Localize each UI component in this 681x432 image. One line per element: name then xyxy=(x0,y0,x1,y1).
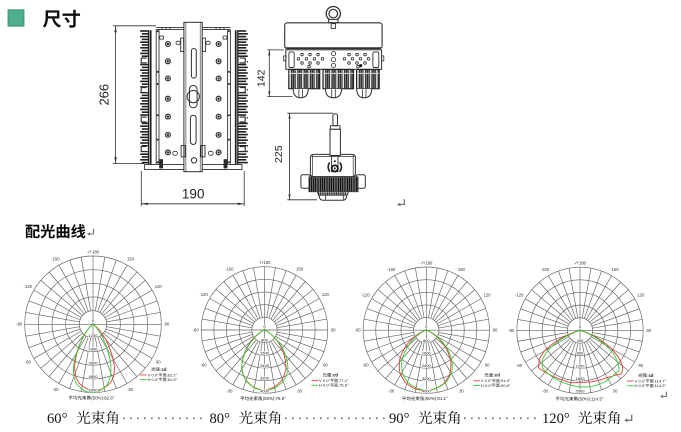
svg-text:80°: 80° xyxy=(210,411,231,427)
svg-text:H 0.0°: H 0.0° xyxy=(319,383,331,388)
svg-text:-/+180: -/+180 xyxy=(574,261,587,266)
svg-text:60: 60 xyxy=(638,363,643,368)
svg-text:30: 30 xyxy=(613,389,618,394)
svg-text:-30: -30 xyxy=(226,388,233,393)
svg-text:-150: -150 xyxy=(387,267,396,272)
svg-text:30: 30 xyxy=(128,387,133,392)
svg-text:150: 150 xyxy=(296,267,304,272)
svg-text:-30: -30 xyxy=(542,389,549,394)
svg-text:120: 120 xyxy=(637,293,645,298)
svg-text::cd: :cd xyxy=(160,367,167,372)
svg-text:60: 60 xyxy=(156,359,161,364)
svg-text:120°: 120° xyxy=(542,411,570,427)
svg-text:150: 150 xyxy=(612,267,620,272)
svg-text:-150: -150 xyxy=(541,267,550,272)
svg-text:,90.8°: ,90.8° xyxy=(500,383,511,388)
svg-text:H 0.0°: H 0.0° xyxy=(148,377,160,382)
svg-text:1200: 1200 xyxy=(89,333,99,338)
svg-text:6000: 6000 xyxy=(89,388,99,393)
svg-text:90°: 90° xyxy=(389,411,410,427)
svg-text:1600: 1600 xyxy=(576,376,586,381)
svg-text:800: 800 xyxy=(577,351,584,356)
svg-text:,114.3°: ,114.3° xyxy=(654,383,667,388)
svg-text:,76.6°: ,76.6° xyxy=(338,383,349,388)
svg-text:2000: 2000 xyxy=(576,389,586,394)
svg-text::cd: :cd xyxy=(494,373,501,378)
svg-text:4000: 4000 xyxy=(422,388,432,393)
svg-text:-90: -90 xyxy=(508,328,515,333)
svg-text:4000: 4000 xyxy=(260,388,270,393)
svg-text:(50%):91.1°: (50%):91.1° xyxy=(425,396,448,401)
svg-text:(50%):62.6°: (50%):62.6° xyxy=(91,395,114,400)
svg-text:800: 800 xyxy=(261,338,268,343)
svg-text:90: 90 xyxy=(164,322,169,327)
svg-text:0: 0 xyxy=(425,324,428,329)
svg-text:120: 120 xyxy=(322,292,330,297)
svg-text:-90: -90 xyxy=(193,327,200,332)
svg-text:H 0.0°: H 0.0° xyxy=(481,383,493,388)
svg-text:1200: 1200 xyxy=(576,363,586,368)
svg-text:800: 800 xyxy=(423,338,430,343)
svg-text:-60: -60 xyxy=(201,363,208,368)
svg-text:-120: -120 xyxy=(24,284,33,289)
svg-text:3600: 3600 xyxy=(89,360,99,365)
svg-text:120: 120 xyxy=(155,284,163,289)
svg-text::cd: :cd xyxy=(647,373,654,378)
svg-text:(50%):76.9°: (50%):76.9° xyxy=(263,396,286,401)
svg-text:190: 190 xyxy=(182,187,205,202)
svg-text:90: 90 xyxy=(646,328,651,333)
svg-text:-120: -120 xyxy=(361,293,370,298)
svg-text:120: 120 xyxy=(484,293,492,298)
svg-text:1600: 1600 xyxy=(260,350,270,355)
svg-text:60°: 60° xyxy=(47,411,68,427)
svg-text:-/+180: -/+180 xyxy=(87,250,100,255)
svg-text:0: 0 xyxy=(579,324,582,329)
svg-text:-30: -30 xyxy=(52,387,59,392)
svg-text:-60: -60 xyxy=(362,363,369,368)
svg-text:,61.9°: ,61.9° xyxy=(167,377,178,382)
svg-text:-150: -150 xyxy=(51,257,60,262)
svg-text:-90: -90 xyxy=(355,328,362,333)
svg-text:(50%):114.5°: (50%):114.5° xyxy=(578,396,604,401)
svg-text:0: 0 xyxy=(92,318,95,323)
svg-text:H 0.0°: H 0.0° xyxy=(635,383,647,388)
svg-text:90: 90 xyxy=(493,328,498,333)
svg-text:0: 0 xyxy=(263,324,266,329)
svg-text:3200: 3200 xyxy=(260,376,270,381)
svg-text:1600: 1600 xyxy=(422,351,432,356)
svg-text:2400: 2400 xyxy=(260,363,270,368)
svg-text::cd: :cd xyxy=(332,373,339,378)
svg-text:2400: 2400 xyxy=(89,347,99,352)
svg-text:2400: 2400 xyxy=(422,363,432,368)
svg-text:-120: -120 xyxy=(515,293,524,298)
svg-text:-/+180: -/+180 xyxy=(420,261,433,266)
svg-text:-120: -120 xyxy=(199,292,208,297)
svg-text:60: 60 xyxy=(485,363,490,368)
svg-text:60: 60 xyxy=(323,363,328,368)
svg-text:150: 150 xyxy=(127,257,135,262)
svg-text:266: 266 xyxy=(96,84,111,106)
svg-text:-60: -60 xyxy=(25,359,32,364)
svg-text:-90: -90 xyxy=(16,322,23,327)
svg-text:30: 30 xyxy=(297,388,302,393)
svg-text:-/+180: -/+180 xyxy=(259,260,272,265)
svg-text:30: 30 xyxy=(459,388,464,393)
svg-text:225: 225 xyxy=(273,145,285,163)
svg-text:3200: 3200 xyxy=(422,376,432,381)
svg-text:4800: 4800 xyxy=(89,374,99,379)
svg-text:90: 90 xyxy=(331,327,336,332)
svg-text:400: 400 xyxy=(577,338,584,343)
svg-text:142: 142 xyxy=(255,69,267,87)
svg-text:150: 150 xyxy=(458,267,466,272)
svg-text:-60: -60 xyxy=(516,363,523,368)
svg-text:-30: -30 xyxy=(388,388,395,393)
svg-text:-150: -150 xyxy=(225,267,234,272)
